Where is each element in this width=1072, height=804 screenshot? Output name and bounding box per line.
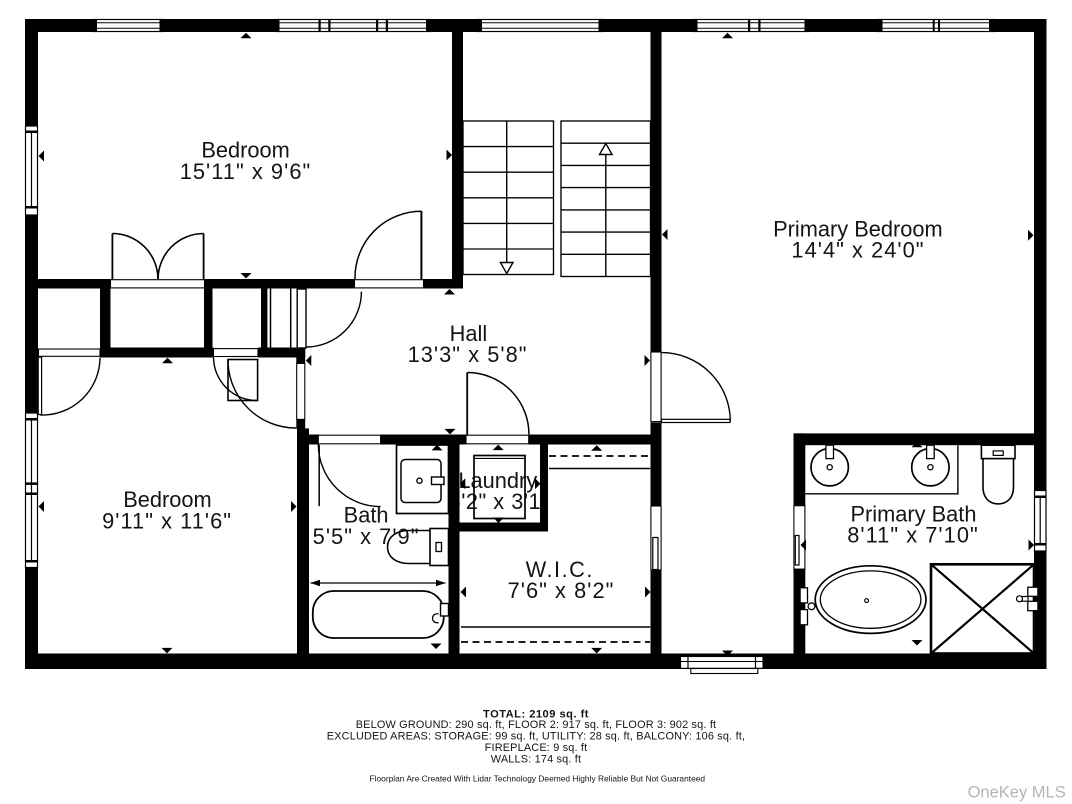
svg-text:BELOW GROUND: 290 sq. ft, FLOO: BELOW GROUND: 290 sq. ft, FLOOR 2: 917 s… (356, 719, 717, 731)
svg-text:OneKey MLS: OneKey MLS (968, 784, 1066, 802)
svg-text:Floorplan Are Created With Lid: Floorplan Are Created With Lidar Technol… (370, 773, 706, 783)
svg-text:EXCLUDED AREAS: STORAGE: 99 sq: EXCLUDED AREAS: STORAGE: 99 sq. ft, UTIL… (327, 730, 745, 742)
svg-text:WALLS: 174 sq. ft: WALLS: 174 sq. ft (491, 754, 581, 766)
svg-text:7'6" x 8'2": 7'6" x 8'2" (508, 578, 615, 603)
svg-text:FIREPLACE: 9 sq. ft: FIREPLACE: 9 sq. ft (485, 742, 588, 754)
svg-text:8'11" x 7'10": 8'11" x 7'10" (847, 523, 979, 548)
svg-text:5'2" x 3'1": 5'2" x 3'1" (449, 489, 550, 514)
svg-text:14'4" x 24'0": 14'4" x 24'0" (791, 238, 924, 263)
svg-text:13'3" x 5'8": 13'3" x 5'8" (408, 342, 528, 367)
svg-text:15'11" x 9'6": 15'11" x 9'6" (180, 159, 312, 184)
svg-text:9'11" x 11'6": 9'11" x 11'6" (102, 509, 232, 534)
svg-text:5'5" x 7'9": 5'5" x 7'9" (313, 524, 420, 549)
